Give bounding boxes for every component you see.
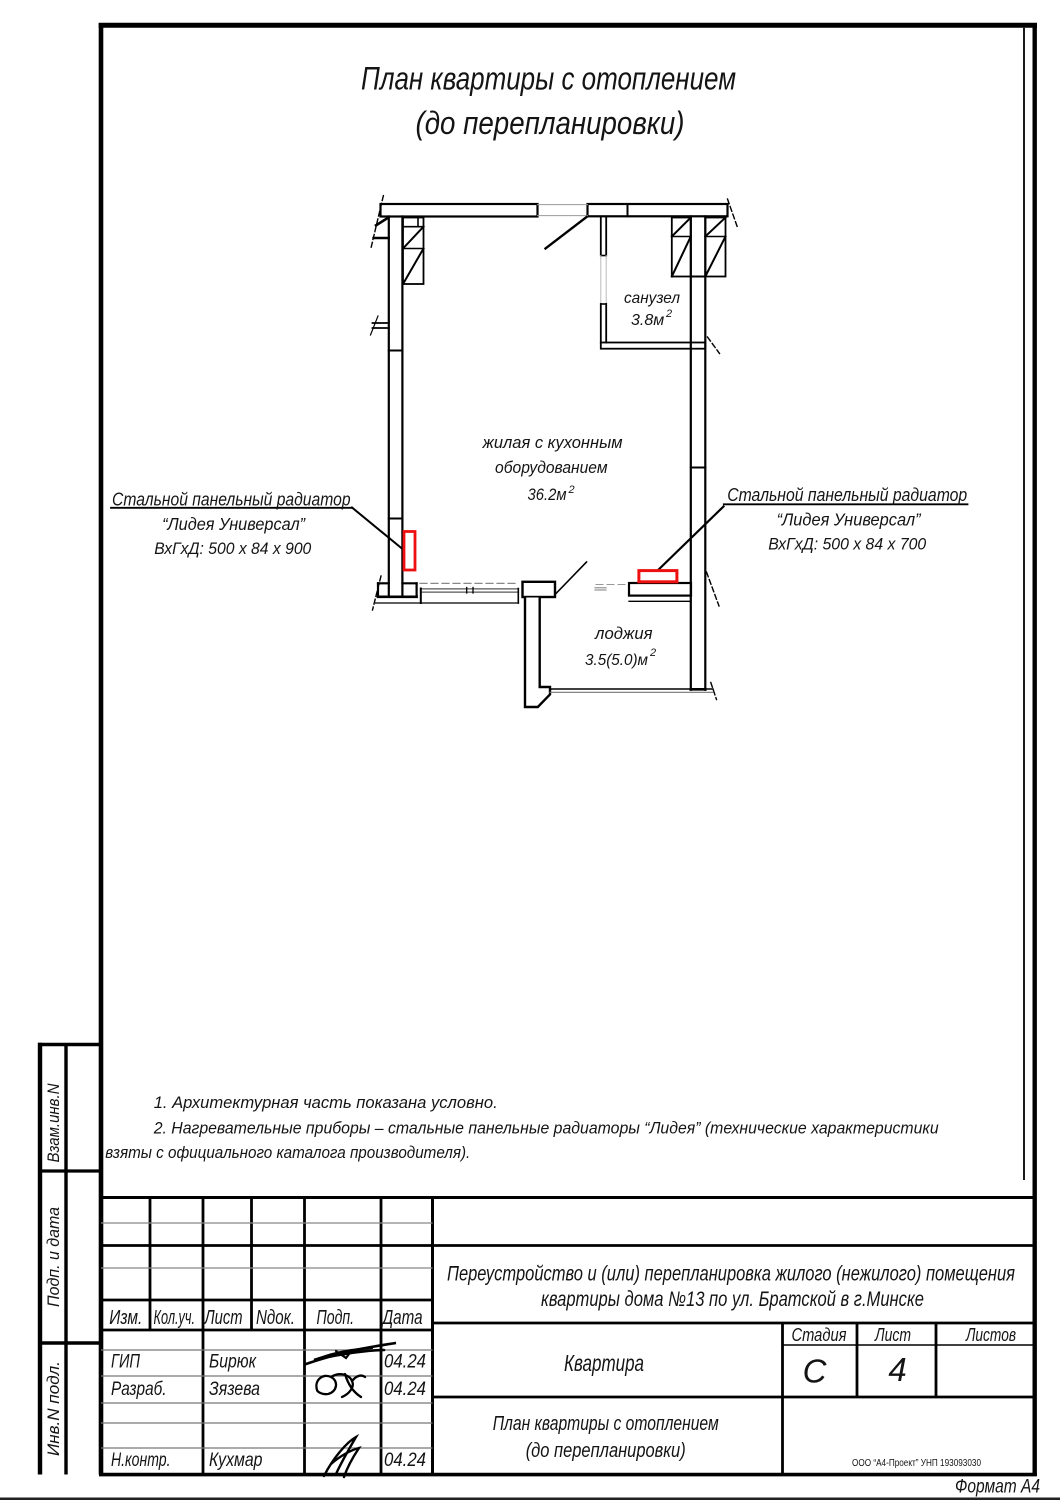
svg-text:ООО “А4-Проект” УНП 193093030: ООО “А4-Проект” УНП 193093030 bbox=[852, 1458, 981, 1469]
svg-text:Стадия: Стадия bbox=[792, 1325, 847, 1345]
svg-text:“Лидея Универсал”: “Лидея Универсал” bbox=[777, 509, 922, 529]
svg-text:04.24: 04.24 bbox=[384, 1352, 426, 1373]
svg-text:36.2м: 36.2м bbox=[528, 485, 567, 504]
svg-text:С: С bbox=[803, 1353, 828, 1390]
svg-text:ВхГхД: 500 х 84 х 900: ВхГхД: 500 х 84 х 900 bbox=[154, 539, 312, 558]
svg-text:Разраб.: Разраб. bbox=[111, 1379, 167, 1400]
svg-text:Подп.: Подп. bbox=[317, 1307, 355, 1329]
svg-text:1. Архитектурная часть показан: 1. Архитектурная часть показана условно. bbox=[154, 1093, 498, 1112]
svg-text:Лист: Лист bbox=[874, 1325, 911, 1345]
svg-text:Стальной панельный радиатор: Стальной панельный радиатор bbox=[727, 484, 967, 505]
svg-text:3.5(5.0)м: 3.5(5.0)м bbox=[585, 652, 648, 669]
svg-text:Взам.инв.N: Взам.инв.N bbox=[45, 1083, 63, 1162]
svg-text:ВхГхД: 500 х 84 х 700: ВхГхД: 500 х 84 х 700 bbox=[768, 534, 927, 553]
svg-text:4: 4 bbox=[888, 1351, 906, 1388]
svg-text:Дата: Дата bbox=[381, 1307, 423, 1329]
svg-text:лоджия: лоджия bbox=[594, 624, 652, 643]
svg-text:Кол.уч.: Кол.уч. bbox=[154, 1307, 196, 1329]
svg-text:Стальной панельный радиатор: Стальной панельный радиатор bbox=[112, 489, 351, 510]
svg-text:Н.контр.: Н.контр. bbox=[111, 1450, 171, 1471]
svg-text:2: 2 bbox=[665, 308, 672, 320]
svg-text:Зязева: Зязева bbox=[209, 1379, 260, 1400]
svg-text:(до перепланировки): (до перепланировки) bbox=[526, 1440, 686, 1462]
svg-text:Лист: Лист bbox=[203, 1307, 242, 1329]
svg-text:жилая с кухонным: жилая с кухонным bbox=[482, 433, 623, 452]
svg-text:2: 2 bbox=[649, 647, 656, 659]
svg-text:“Лидея Универсал”: “Лидея Универсал” bbox=[162, 514, 306, 534]
svg-text:Кухмар: Кухмар bbox=[209, 1450, 263, 1471]
svg-text:Бирюк: Бирюк bbox=[209, 1352, 257, 1373]
svg-text:оборудованием: оборудованием bbox=[495, 458, 608, 477]
svg-text:взяты с официального каталога: взяты с официального каталога производит… bbox=[105, 1143, 470, 1162]
svg-text:ГИП: ГИП bbox=[111, 1352, 140, 1373]
svg-text:Инв.N подл.: Инв.N подл. bbox=[45, 1361, 63, 1456]
svg-text:04.24: 04.24 bbox=[384, 1450, 426, 1471]
svg-text:План квартиры с отоплением: План квартиры с отоплением bbox=[493, 1413, 719, 1435]
svg-text:2. Нагревательные приборы – ст: 2. Нагревательные приборы – стальные пан… bbox=[153, 1119, 939, 1138]
svg-text:(до перепланировки): (до перепланировки) bbox=[416, 105, 685, 141]
svg-text:Переустройство и (или) перепла: Переустройство и (или) перепланировка жи… bbox=[447, 1263, 1015, 1286]
svg-text:3.8м: 3.8м bbox=[631, 312, 664, 329]
svg-text:Подп. и дата: Подп. и дата bbox=[45, 1207, 63, 1307]
svg-text:Листов: Листов bbox=[965, 1325, 1016, 1345]
svg-text:санузел: санузел bbox=[624, 290, 680, 307]
svg-text:Формат А4: Формат А4 bbox=[955, 1477, 1040, 1498]
svg-text:2: 2 bbox=[568, 484, 575, 496]
svg-text:квартиры дома №13 по ул. Братс: квартиры дома №13 по ул. Братской в г.Ми… bbox=[541, 1288, 924, 1311]
svg-text:04.24: 04.24 bbox=[384, 1379, 426, 1400]
svg-text:Nдок.: Nдок. bbox=[256, 1307, 295, 1329]
svg-text:План квартиры с отоплением: План квартиры с отоплением bbox=[361, 61, 736, 97]
svg-text:Изм.: Изм. bbox=[109, 1307, 142, 1329]
svg-text:Квартира: Квартира bbox=[564, 1350, 644, 1376]
